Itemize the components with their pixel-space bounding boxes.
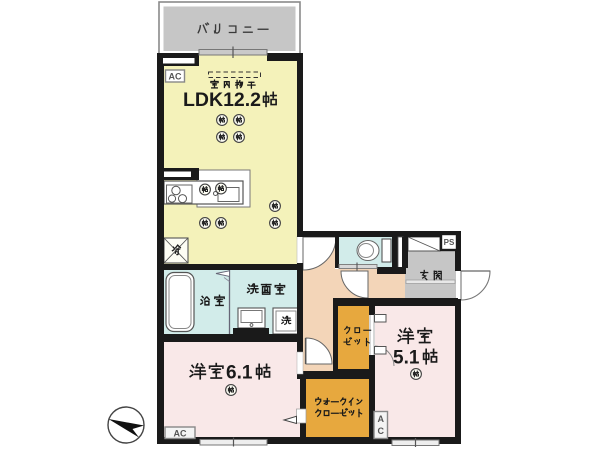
svg-text:AC: AC	[169, 72, 182, 82]
svg-text:AC: AC	[174, 429, 187, 439]
svg-text:6.1: 6.1	[226, 363, 253, 384]
svg-text:PS: PS	[444, 238, 455, 247]
svg-text:C: C	[377, 426, 384, 436]
svg-text:LDK12.2: LDK12.2	[183, 89, 261, 111]
svg-text:5.1: 5.1	[393, 348, 420, 369]
svg-text:A: A	[377, 414, 384, 424]
